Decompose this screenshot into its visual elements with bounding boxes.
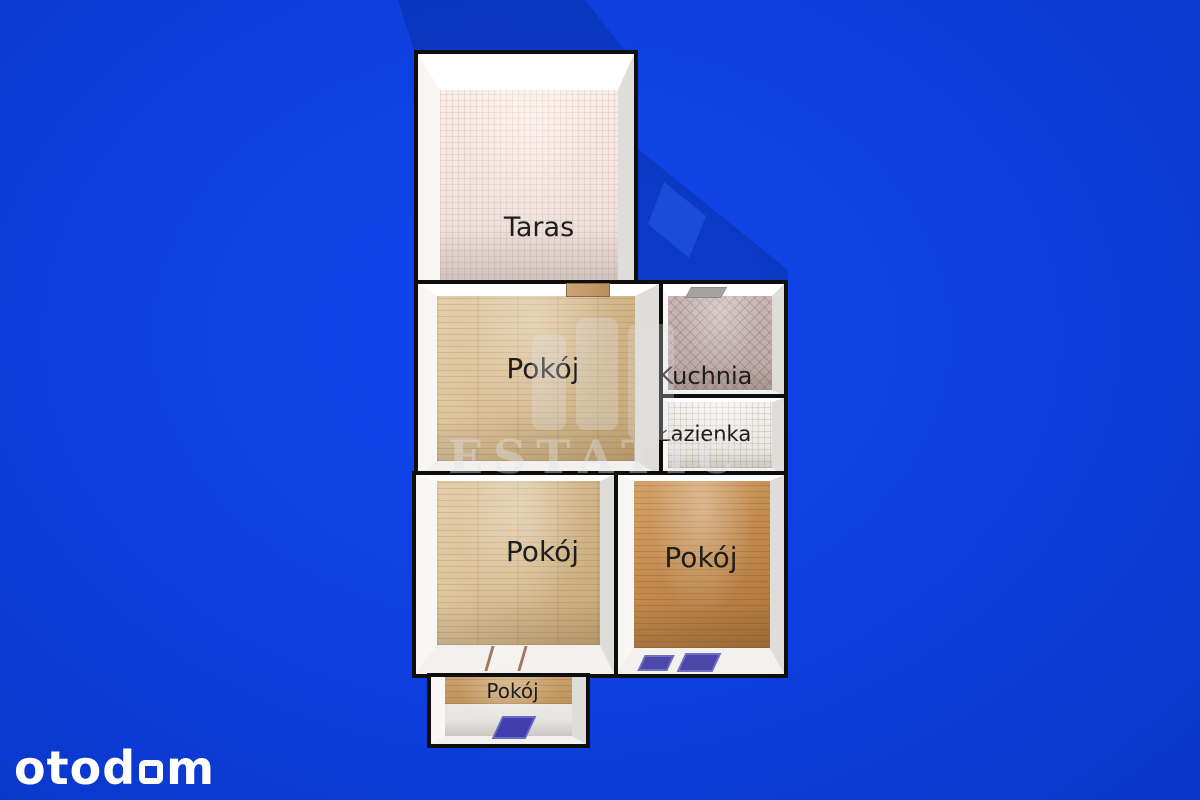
room-kuchnia-walls: Kuchnia (660, 284, 784, 395)
room-pokoj-lower-left-walls: Pokój (416, 475, 614, 674)
room-taras: Taras (414, 50, 638, 288)
room-pokoj-main-walls: Pokój (418, 284, 659, 475)
room-label-taras: Taras (504, 212, 574, 243)
room-label-pokoj-lower-left: Pokój (506, 535, 579, 568)
room-label-pokoj-main: Pokój (506, 352, 579, 385)
room-label-pokoj-lower-right: Pokój (664, 541, 737, 574)
otodom-square-o-icon (139, 760, 163, 784)
room-kuchnia: Kuchnia (656, 280, 788, 399)
floor-plan-render: Taras Kuchnia Łazienka Pokój Pokój (0, 0, 1200, 800)
room-label-kuchnia: Kuchnia (658, 362, 753, 390)
room-lazienka: Łazienka (656, 394, 788, 479)
door-threshold-lower-left (484, 646, 527, 671)
room-taras-walls: Taras (418, 54, 634, 284)
floor-light-overlay (440, 90, 618, 281)
door-threshold-taras (566, 283, 610, 297)
otodom-logo-text-left: otod (14, 741, 136, 795)
room-pokoj-lower-right: Pokój (610, 471, 788, 678)
room-pokoj-main: Pokój (414, 280, 663, 479)
otodom-logo-text-right: m (166, 741, 215, 795)
room-pokoj-lower-right-walls: Pokój (614, 475, 784, 674)
room-label-lazienka: Łazienka (659, 422, 751, 446)
room-lazienka-walls: Łazienka (660, 398, 784, 475)
kuchnia-vent (685, 287, 727, 298)
room-label-pokoj-small: Pokój (486, 679, 538, 703)
otodom-logo: otodm (14, 744, 215, 792)
